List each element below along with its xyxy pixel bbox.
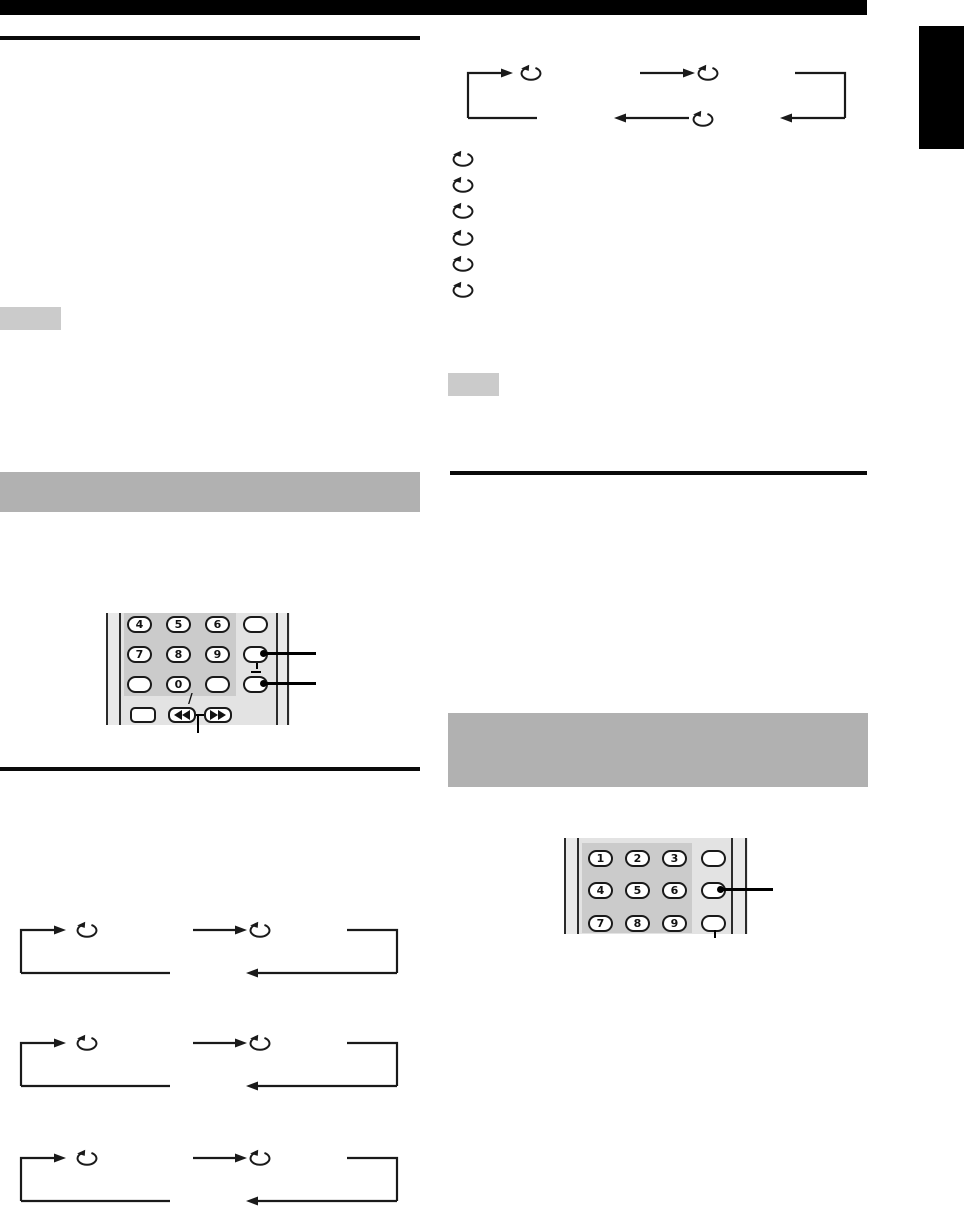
digit-button-2: 2 <box>625 850 650 867</box>
callout-line <box>264 682 316 685</box>
slash-mark: / <box>188 692 193 707</box>
loop-arrow-icon <box>450 150 476 168</box>
remote-edge-line <box>564 838 566 934</box>
cycle-diagram-3 <box>5 1140 405 1207</box>
blank-button <box>127 676 152 693</box>
arrow-left-icon <box>780 114 792 123</box>
rewind-button <box>168 707 196 723</box>
remote-edge-line <box>287 613 289 725</box>
arrow-right-icon <box>683 69 695 78</box>
digit-label: 3 <box>671 853 679 864</box>
left-remote-illustration: 4 5 6 7 8 9 0 <box>106 613 290 725</box>
digit-label: 8 <box>175 649 183 660</box>
digit-label: 0 <box>175 679 183 690</box>
remote-edge-line <box>745 838 747 934</box>
left-section-header-bar <box>0 472 420 512</box>
loop-arrow-icon <box>77 922 96 937</box>
blank-button <box>205 676 230 693</box>
right-note-box <box>448 373 499 396</box>
transport-callout-stem <box>197 715 199 733</box>
digit-button-1: 1 <box>588 850 613 867</box>
digit-button-7: 7 <box>588 915 613 932</box>
bracket-left <box>21 1158 54 1201</box>
callout-line <box>264 652 316 655</box>
digit-button-3: 3 <box>662 850 687 867</box>
remote-edge-line <box>106 613 108 725</box>
digit-button-0: 0 <box>166 676 191 693</box>
digit-label: 5 <box>634 885 642 896</box>
digit-button-4: 4 <box>588 882 613 899</box>
blank-button <box>243 616 268 633</box>
bracket-right <box>347 1043 397 1086</box>
digit-button-9: 9 <box>205 646 230 663</box>
digit-button-5: 5 <box>166 616 191 633</box>
digit-button-5: 5 <box>625 882 650 899</box>
digit-label: 9 <box>671 918 679 929</box>
remote-edge-line <box>731 838 733 934</box>
loop-arrow-icon <box>250 1035 269 1050</box>
digit-button-6: 6 <box>662 882 687 899</box>
loop-arrow-icon <box>250 922 269 937</box>
loop-arrow-icon <box>77 1035 96 1050</box>
cycle-diagram-2 <box>5 1025 405 1103</box>
arrow-left-icon <box>614 114 626 123</box>
loop-arrow-icon <box>450 281 476 299</box>
digit-button-8: 8 <box>625 915 650 932</box>
digit-button-9: 9 <box>662 915 687 932</box>
loop-arrow-icon <box>77 1150 96 1165</box>
loop-arrow-icon <box>450 176 476 194</box>
side-tab <box>919 26 964 149</box>
manual-page: 4 5 6 7 8 9 0 / <box>0 0 964 1207</box>
left-section-rule-top <box>0 36 420 40</box>
digit-label: 6 <box>214 619 222 630</box>
arrow-right-icon <box>235 926 247 935</box>
digit-label: 7 <box>136 649 144 660</box>
loop-arrow-icon <box>250 1150 269 1165</box>
right-section-header-bar <box>448 713 868 787</box>
fast-forward-icon <box>210 710 226 720</box>
callout-dash <box>251 671 261 673</box>
arrow-left-icon <box>246 1082 258 1091</box>
cycle-diagram-1 <box>5 912 405 990</box>
arrow-right-icon <box>235 1154 247 1163</box>
digit-label: 1 <box>597 853 605 864</box>
loop-arrow-icon <box>450 229 476 247</box>
bracket-right <box>347 1158 397 1201</box>
digit-label: 5 <box>175 619 183 630</box>
digit-label: 2 <box>634 853 642 864</box>
right-section-rule <box>450 471 867 475</box>
rewind-icon <box>174 710 190 720</box>
loop-arrow-icon <box>693 111 712 126</box>
digit-label: 7 <box>597 918 605 929</box>
digit-button-6: 6 <box>205 616 230 633</box>
arrow-right-icon <box>501 69 513 78</box>
digit-label: 4 <box>597 885 605 896</box>
digit-label: 6 <box>671 885 679 896</box>
digit-label: 8 <box>634 918 642 929</box>
callout-stem <box>714 930 716 938</box>
digit-button-8: 8 <box>166 646 191 663</box>
loop-arrow-icon <box>698 65 717 80</box>
loop-arrow-icon <box>450 202 476 220</box>
callout-line <box>721 888 773 891</box>
cycle-diagram-top-right <box>455 55 855 135</box>
digit-button-7: 7 <box>127 646 152 663</box>
arrow-right-icon <box>54 1154 66 1163</box>
left-section-rule-bottom <box>0 767 420 771</box>
fast-forward-button <box>204 707 232 723</box>
top-header-bar <box>0 0 867 15</box>
bracket-right <box>795 73 845 118</box>
bracket-left <box>21 930 54 973</box>
blank-square-button <box>130 707 156 723</box>
loop-arrow-icon <box>521 65 540 80</box>
digit-button-4: 4 <box>127 616 152 633</box>
digit-label: 4 <box>136 619 144 630</box>
bracket-left <box>21 1043 54 1086</box>
arrow-left-icon <box>246 1197 258 1206</box>
loop-arrow-icon <box>450 255 476 273</box>
arrow-right-icon <box>54 1039 66 1048</box>
arrow-right-icon <box>235 1039 247 1048</box>
digit-label: 9 <box>214 649 222 660</box>
arrow-left-icon <box>246 969 258 978</box>
left-note-box <box>0 307 61 330</box>
bracket-left <box>468 73 501 118</box>
bracket-right <box>347 930 397 973</box>
blank-button <box>701 850 726 867</box>
remote-edge-line <box>276 613 278 725</box>
arrow-right-icon <box>54 926 66 935</box>
callout-stem <box>256 663 258 669</box>
